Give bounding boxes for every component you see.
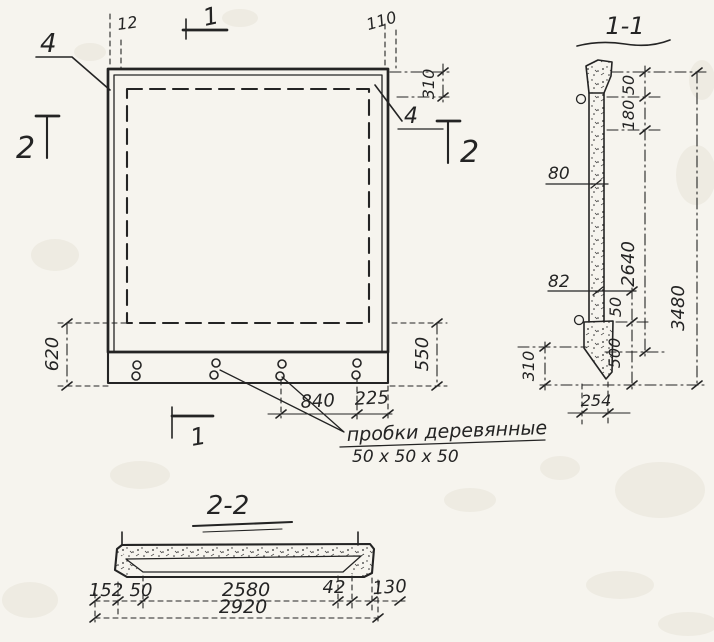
section-2-2-underline-1 xyxy=(193,522,292,526)
dim-82: 82 xyxy=(548,272,570,292)
dim-225: 225 xyxy=(354,387,389,410)
callout-4-topleft-leader xyxy=(36,57,110,90)
dim-840: 840 xyxy=(300,390,335,413)
plug-note-line2: 50 х 50 х 50 xyxy=(352,447,459,467)
dim-12: 12 xyxy=(116,12,139,34)
dim-500: 500 xyxy=(605,338,624,369)
dim-152: 152 xyxy=(89,580,123,601)
lifting-loop-bottom xyxy=(575,316,584,325)
dim-80: 80 xyxy=(548,164,570,184)
section-mark-1-bottom: 1 xyxy=(172,407,213,452)
section-1-bottom-label: 1 xyxy=(188,422,208,452)
dim-42: 42 xyxy=(323,577,346,598)
dim-50-top: 50 xyxy=(619,75,638,95)
dim-310-front: 310 xyxy=(419,69,438,100)
panel-inner-outline xyxy=(114,75,382,352)
dim-550: 550 xyxy=(412,337,433,371)
dim-2920: 2920 xyxy=(219,596,267,618)
dim-2640: 2640 xyxy=(618,241,639,287)
section-mark-2-right: 2 xyxy=(437,121,479,170)
panel-outer-outline xyxy=(108,69,388,352)
drawing-canvas: пробки деревянные 50 х 50 х 50 4 4 1 1 2 xyxy=(0,0,714,642)
callout-4-topright-label: 4 xyxy=(404,104,418,129)
dim-620-extensions xyxy=(58,323,127,386)
section-mark-2-left: 2 xyxy=(16,116,59,166)
panel-dashed-opening xyxy=(127,89,369,323)
dim-620: 620 xyxy=(42,337,63,371)
section-2-2-underline-2 xyxy=(203,529,282,532)
dim-180: 180 xyxy=(619,100,638,131)
dim-50-bottom: 50 xyxy=(606,297,625,317)
dim-130: 130 xyxy=(372,576,408,599)
front-view: пробки деревянные 50 х 50 х 50 4 4 1 1 2 xyxy=(16,1,547,467)
lifting-loop-top xyxy=(577,95,586,104)
plug-holes xyxy=(132,359,361,380)
callout-4-topleft-label: 4 xyxy=(40,29,57,59)
section-1-1-title: 1-1 xyxy=(605,12,644,40)
section-2-2-title: 2-2 xyxy=(207,491,249,521)
dim-3480: 3480 xyxy=(668,285,689,331)
slab-inner-lines xyxy=(126,556,361,572)
dim-310-section: 310 xyxy=(519,351,538,382)
section-2-right-label: 2 xyxy=(460,135,479,170)
slab-extent-ticks xyxy=(122,532,358,545)
section-head-fill xyxy=(586,60,612,93)
section-2-left-label: 2 xyxy=(16,131,35,166)
plug-note-line1: пробки деревянные xyxy=(346,417,547,446)
section-1-1: 1-1 80 82 50 180 2640 3480 xyxy=(518,12,706,424)
section-2-2: 2-2 152 50 2580 42 130 2920 xyxy=(89,491,408,622)
section-1-1-title-underline xyxy=(577,40,670,46)
dim-254: 254 xyxy=(581,391,612,410)
panel-bottom-strip xyxy=(108,352,388,383)
dim-110: 110 xyxy=(364,7,399,34)
dim-50-slab: 50 xyxy=(130,580,153,601)
section-1-top-label: 1 xyxy=(200,1,221,32)
section-mark-1-top: 1 xyxy=(183,1,227,39)
